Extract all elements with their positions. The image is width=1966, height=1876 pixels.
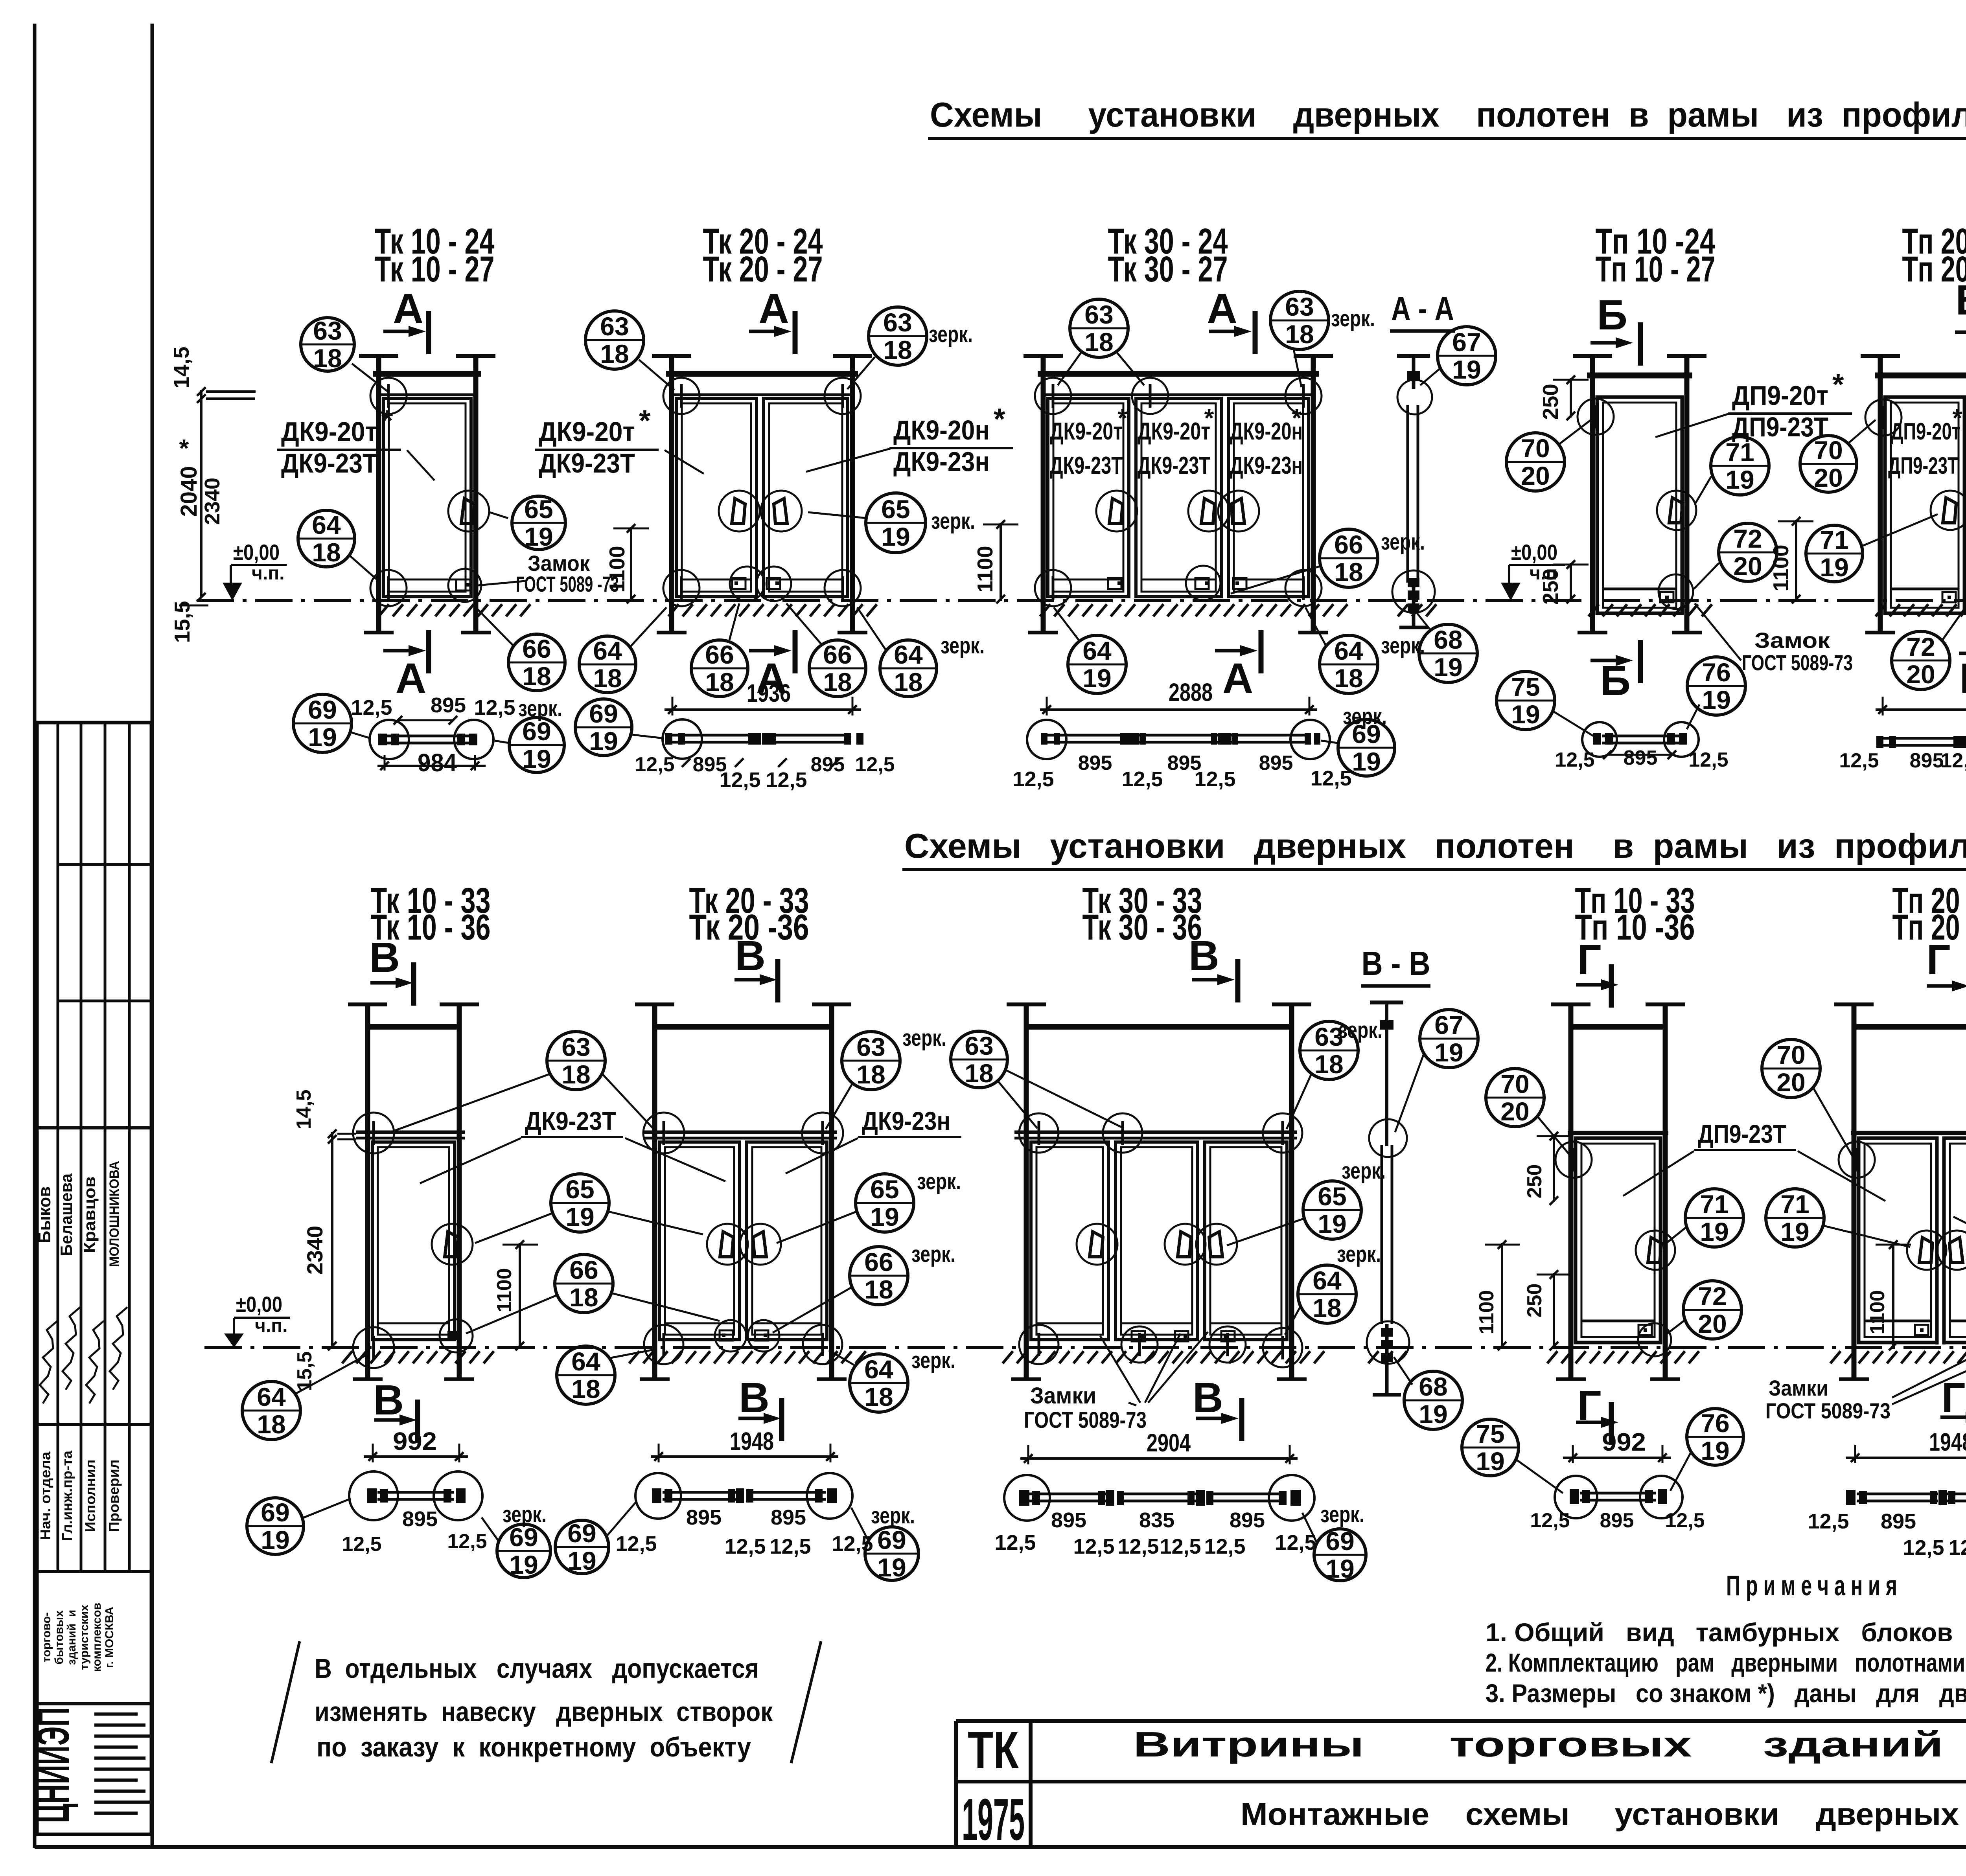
svg-text:18: 18 [313, 344, 342, 373]
svg-text:64: 64 [1082, 636, 1112, 665]
svg-text:895: 895 [1051, 1508, 1086, 1532]
svg-text:69: 69 [522, 717, 551, 746]
svg-text:ГОСТ 5089-73: ГОСТ 5089-73 [1024, 1407, 1147, 1433]
svg-text:ДК9-23Т: ДК9-23Т [1050, 452, 1123, 479]
svg-text:12,5: 12,5 [1688, 749, 1728, 771]
svg-text:12,5: 12,5 [1194, 767, 1235, 791]
svg-text:*: * [1953, 404, 1962, 432]
svg-text:19: 19 [881, 522, 910, 551]
svg-text:69: 69 [308, 695, 337, 724]
svg-text:19: 19 [1318, 1209, 1346, 1238]
svg-text:2904: 2904 [1147, 1429, 1191, 1457]
svg-text:12,5: 12,5 [635, 753, 674, 776]
svg-text:12,5: 12,5 [615, 1532, 657, 1556]
svg-text:*: * [1292, 404, 1302, 432]
svg-text:ГОСТ 5089-73: ГОСТ 5089-73 [1765, 1398, 1891, 1423]
svg-text:Схемы установки дверных: Схемы установки дверных полотен в рамы и… [930, 95, 1966, 134]
svg-text:19: 19 [1352, 747, 1381, 776]
svg-text:комплексов: комплексов [90, 1603, 103, 1672]
svg-text:19: 19 [1701, 1436, 1729, 1465]
svg-text:19: 19 [1700, 1217, 1729, 1246]
svg-text:64: 64 [1313, 1266, 1342, 1295]
svg-text:3. Размеры со знаком *) да: 3. Размеры со знаком *) даны для дверных… [1486, 1679, 1966, 1708]
svg-text:зерк.: зерк. [1342, 1158, 1386, 1184]
svg-text:ТК: ТК [968, 1720, 1019, 1780]
svg-text:71: 71 [1780, 1190, 1809, 1219]
svg-text:Тк 20 - 27: Тк 20 - 27 [703, 249, 823, 289]
svg-text:*: * [1832, 368, 1844, 401]
svg-text:12,5: 12,5 [1121, 767, 1163, 791]
svg-text:18: 18 [864, 1275, 893, 1304]
svg-text:895: 895 [1600, 1509, 1634, 1532]
svg-text:12,5: 12,5 [1204, 1535, 1245, 1558]
svg-text:64: 64 [864, 1355, 893, 1384]
svg-text:895: 895 [402, 1507, 438, 1531]
svg-text:12,5: 12,5 [1665, 1509, 1705, 1532]
svg-text:64: 64 [312, 510, 341, 539]
svg-text:63: 63 [883, 308, 912, 337]
svg-text:зерк.: зерк. [911, 1348, 955, 1373]
svg-text:1948: 1948 [730, 1427, 774, 1455]
svg-text:зданий и: зданий и [65, 1610, 78, 1665]
svg-text:В - В: В - В [1362, 945, 1430, 982]
svg-text:*: * [639, 404, 651, 438]
svg-text:69: 69 [1352, 719, 1381, 749]
svg-text:18: 18 [1084, 327, 1113, 357]
svg-text:±0,00: ±0,00 [236, 1292, 282, 1317]
svg-text:Схемы установки дверных: Схемы установки дверных полотен в рамы и… [904, 826, 1966, 865]
svg-text:19: 19 [565, 1202, 594, 1231]
svg-text:ЦНИИЭП: ЦНИИЭП [27, 1707, 79, 1823]
svg-text:ДК9-20т: ДК9-20т [281, 416, 377, 447]
svg-text:1100: 1100 [1866, 1290, 1889, 1335]
svg-text:70: 70 [1521, 434, 1550, 463]
svg-text:зерк.: зерк. [911, 1241, 955, 1267]
svg-text:895: 895 [1910, 749, 1944, 772]
svg-text:В: В [369, 933, 400, 981]
svg-text:2040: 2040 [176, 466, 202, 517]
svg-text:63: 63 [1285, 292, 1314, 321]
svg-text:895: 895 [1881, 1510, 1916, 1533]
svg-text:19: 19 [877, 1553, 906, 1582]
svg-text:П р и м е ч а н и я: П р и м е ч а н и я [1726, 1570, 1897, 1602]
svg-text:12,5: 12,5 [719, 768, 760, 792]
svg-text:Исполнил: Исполнил [82, 1460, 98, 1532]
svg-text:984: 984 [418, 749, 457, 777]
svg-text:ДК9-20т: ДК9-20т [539, 416, 635, 447]
svg-text:19: 19 [870, 1202, 899, 1231]
svg-text:895: 895 [771, 1506, 806, 1529]
svg-text:63: 63 [561, 1032, 590, 1061]
svg-text:69: 69 [589, 699, 618, 728]
svg-text:Б: Б [1597, 291, 1627, 338]
svg-text:А: А [393, 285, 423, 332]
svg-text:76: 76 [1702, 658, 1730, 687]
svg-text:зерк.: зерк. [917, 1169, 961, 1194]
svg-text:1100: 1100 [1769, 544, 1793, 591]
svg-text:18: 18 [965, 1059, 993, 1088]
svg-text:1975: 1975 [962, 1786, 1025, 1852]
svg-text:ДК9-23н: ДК9-23н [893, 446, 990, 477]
svg-text:19: 19 [1725, 465, 1754, 494]
svg-text:75: 75 [1511, 672, 1540, 701]
svg-text:12,5: 12,5 [994, 1531, 1036, 1554]
svg-text:Нач. отдела: Нач. отдела [37, 1451, 53, 1540]
svg-text:19: 19 [1702, 685, 1730, 714]
svg-text:12,5: 12,5 [1808, 1510, 1849, 1533]
svg-text:992: 992 [393, 1427, 437, 1455]
svg-text:250: 250 [1538, 384, 1563, 420]
svg-text:Замки: Замки [1030, 1383, 1096, 1409]
svg-text:А: А [1222, 654, 1253, 702]
svg-text:895: 895 [686, 1506, 722, 1529]
svg-text:12,5: 12,5 [1160, 1535, 1201, 1558]
svg-text:зерк.: зерк. [1337, 1241, 1381, 1267]
svg-text:1. Общий вид тамбурных б: 1. Общий вид тамбурных блоков см. листы … [1486, 1618, 1966, 1647]
svg-text:А: А [758, 285, 789, 332]
svg-text:66: 66 [569, 1255, 598, 1284]
svg-text:15,5: 15,5 [170, 601, 194, 643]
svg-text:Г: Г [1577, 936, 1601, 983]
svg-text:18: 18 [894, 668, 922, 697]
svg-text:12,5: 12,5 [1948, 1536, 1966, 1560]
svg-text:12,5: 12,5 [1839, 749, 1879, 772]
svg-text:70: 70 [1776, 1040, 1805, 1069]
svg-text:68: 68 [1419, 1372, 1447, 1401]
svg-text:бытовых: бытовых [53, 1610, 66, 1664]
svg-text:Замки: Замки [1769, 1376, 1828, 1400]
svg-text:*: * [994, 403, 1005, 436]
svg-text:12,5: 12,5 [1555, 749, 1594, 771]
svg-text:ДК9-23н: ДК9-23н [862, 1106, 950, 1135]
svg-text:19: 19 [1434, 1038, 1463, 1067]
svg-text:69: 69 [877, 1525, 906, 1554]
svg-text:12,5: 12,5 [1012, 767, 1054, 791]
svg-text:19: 19 [1434, 653, 1462, 682]
svg-text:71: 71 [1725, 438, 1754, 467]
svg-text:12,5: 12,5 [447, 1530, 487, 1553]
svg-text:А: А [396, 654, 426, 702]
svg-text:зерк.: зерк. [1331, 306, 1375, 331]
svg-text:зерк.: зерк. [931, 508, 975, 534]
svg-text:72: 72 [1906, 632, 1935, 661]
svg-text:18: 18 [823, 668, 852, 697]
svg-text:12,5: 12,5 [342, 1533, 381, 1556]
svg-text:1100: 1100 [1475, 1290, 1498, 1335]
svg-text:18: 18 [864, 1382, 893, 1411]
svg-text:12,5: 12,5 [474, 696, 515, 719]
svg-text:19: 19 [567, 1546, 596, 1575]
svg-text:1936: 1936 [747, 679, 791, 707]
svg-text:зерк.: зерк. [871, 1503, 915, 1528]
svg-text:В отдельных случаях допус: В отдельных случаях допускается [315, 1653, 759, 1684]
svg-text:торгово-: торгово- [40, 1612, 53, 1663]
svg-text:19: 19 [1780, 1217, 1809, 1246]
svg-text:12,5: 12,5 [1117, 1535, 1159, 1558]
svg-text:А - А: А - А [1391, 290, 1454, 327]
svg-text:Тк 10 - 27: Тк 10 - 27 [375, 249, 495, 289]
svg-text:68: 68 [1434, 625, 1462, 654]
svg-text:МОЛОШНИКОВА: МОЛОШНИКОВА [107, 1161, 122, 1267]
svg-text:64: 64 [571, 1347, 600, 1376]
svg-text:19: 19 [522, 744, 551, 773]
svg-text:18: 18 [312, 538, 341, 567]
svg-text:20: 20 [1698, 1309, 1727, 1338]
svg-text:Кравцов: Кравцов [80, 1177, 99, 1253]
svg-text:2. Комплектацию рам дверны: 2. Комплектацию рам дверными полотнами (… [1486, 1648, 1966, 1677]
svg-text:20: 20 [1500, 1097, 1529, 1126]
svg-text:70: 70 [1500, 1069, 1529, 1098]
svg-text:Проверил: Проверил [106, 1460, 122, 1532]
svg-text:Витрины торговых здан: Витрины торговых зданий [1133, 1725, 1943, 1764]
svg-text:19: 19 [1419, 1400, 1447, 1429]
svg-text:18: 18 [561, 1060, 590, 1089]
svg-text:ДК9-23Т: ДК9-23Т [539, 448, 635, 478]
svg-text:19: 19 [1452, 355, 1481, 384]
svg-text:12,5: 12,5 [1275, 1531, 1316, 1554]
svg-text:В: В [735, 932, 766, 979]
svg-text:19: 19 [308, 723, 337, 752]
svg-text:65: 65 [1318, 1182, 1346, 1211]
svg-text:895: 895 [1078, 752, 1112, 774]
svg-text:*: * [1118, 404, 1128, 432]
svg-text:Тп 10 - 27: Тп 10 - 27 [1596, 249, 1716, 289]
svg-text:Гл.инж.пр-та: Гл.инж.пр-та [59, 1450, 75, 1541]
svg-text:2888: 2888 [1169, 678, 1213, 706]
svg-text:12,5: 12,5 [1940, 749, 1966, 772]
svg-text:12,5: 12,5 [1073, 1535, 1114, 1558]
svg-text:18: 18 [856, 1060, 885, 1089]
svg-text:ГОСТ 5089 -73: ГОСТ 5089 -73 [516, 572, 619, 596]
svg-text:Белашева: Белашева [57, 1173, 75, 1256]
svg-text:В: В [1193, 1374, 1223, 1421]
svg-text:75: 75 [1476, 1419, 1504, 1448]
svg-text:Б: Б [1959, 654, 1966, 702]
svg-text:992: 992 [1602, 1428, 1646, 1456]
svg-text:835: 835 [1139, 1508, 1174, 1532]
svg-text:12,5: 12,5 [724, 1535, 766, 1558]
svg-text:Тк 30 - 27: Тк 30 - 27 [1108, 249, 1228, 289]
svg-text:Г: Г [1926, 936, 1950, 983]
svg-text:250: 250 [1538, 568, 1563, 605]
svg-text:20: 20 [1906, 660, 1935, 689]
svg-text:ДП9-20т: ДП9-20т [1732, 380, 1828, 411]
svg-text:Монтажные схемы установ: Монтажные схемы установки дверных полоте… [1241, 1797, 1966, 1832]
svg-text:72: 72 [1698, 1282, 1727, 1311]
svg-text:65: 65 [870, 1175, 899, 1204]
svg-text:63: 63 [965, 1031, 993, 1060]
svg-text:ДК9-20н: ДК9-20н [893, 415, 990, 445]
svg-text:14,5: 14,5 [293, 1089, 315, 1129]
svg-text:66: 66 [705, 640, 734, 669]
svg-text:70: 70 [1814, 436, 1843, 465]
svg-text:18: 18 [569, 1283, 598, 1312]
svg-text:А: А [1207, 285, 1237, 332]
svg-text:18: 18 [1314, 1050, 1343, 1079]
svg-text:20: 20 [1776, 1068, 1805, 1097]
svg-text:18: 18 [1334, 557, 1363, 587]
svg-text:*: * [381, 404, 393, 438]
svg-text:Замок: Замок [1754, 628, 1830, 653]
svg-text:12,5: 12,5 [1310, 767, 1351, 790]
svg-text:63: 63 [313, 316, 342, 345]
svg-text:зерк.: зерк. [902, 1025, 946, 1051]
svg-text:2340: 2340 [302, 1226, 327, 1275]
svg-text:20: 20 [1521, 461, 1550, 490]
svg-text:69: 69 [261, 1498, 289, 1527]
svg-text:Б: Б [1600, 657, 1631, 704]
svg-text:ДК9-20т: ДК9-20т [1138, 418, 1210, 445]
svg-text:19: 19 [1325, 1554, 1354, 1583]
svg-text:зерк.: зерк. [929, 322, 973, 347]
svg-text:15,5: 15,5 [293, 1351, 316, 1391]
svg-text:12,5: 12,5 [1903, 1536, 1944, 1560]
svg-text:71: 71 [1700, 1190, 1729, 1219]
svg-text:г. МОСКВА: г. МОСКВА [103, 1607, 116, 1668]
svg-text:2340: 2340 [201, 478, 224, 525]
svg-text:изменять навеску дверных с: изменять навеску дверных створок [315, 1696, 773, 1727]
svg-text:69: 69 [567, 1519, 596, 1548]
svg-text:64: 64 [593, 636, 622, 665]
svg-text:67: 67 [1452, 327, 1481, 357]
svg-text:18: 18 [1313, 1293, 1341, 1322]
svg-text:ДП9-23Т: ДП9-23Т [1698, 1119, 1786, 1148]
svg-text:65: 65 [881, 495, 910, 524]
svg-text:895: 895 [1259, 752, 1293, 774]
svg-text:63: 63 [856, 1032, 885, 1061]
svg-text:20: 20 [1733, 552, 1762, 581]
svg-text:64: 64 [1334, 636, 1363, 665]
svg-text:20: 20 [1814, 463, 1843, 492]
svg-text:250: 250 [1523, 1164, 1546, 1199]
svg-text:72: 72 [1733, 524, 1762, 553]
svg-text:туристских: туристских [78, 1605, 91, 1670]
svg-text:66: 66 [522, 634, 551, 663]
svg-text:ДК9-23Т: ДК9-23Т [281, 448, 377, 478]
svg-text:Тк 30 - 36: Тк 30 - 36 [1082, 907, 1202, 947]
svg-text:67: 67 [1434, 1010, 1463, 1039]
svg-text:ДК9-23Т: ДК9-23Т [1138, 452, 1210, 479]
svg-text:12,5: 12,5 [1530, 1509, 1570, 1532]
svg-text:19: 19 [261, 1525, 289, 1554]
svg-text:±0,00: ±0,00 [233, 540, 280, 565]
svg-text:895: 895 [1230, 1508, 1265, 1532]
svg-text:18: 18 [593, 664, 622, 693]
svg-text:18: 18 [522, 662, 551, 691]
svg-text:63: 63 [1084, 300, 1113, 329]
svg-text:зерк.: зерк. [1320, 1502, 1364, 1527]
svg-text:69: 69 [1325, 1527, 1354, 1556]
svg-text:ДК9-23Т: ДК9-23Т [525, 1106, 616, 1135]
svg-text:14,5: 14,5 [169, 346, 193, 388]
svg-text:65: 65 [524, 495, 553, 524]
svg-text:Б: Б [1955, 276, 1966, 324]
svg-text:895: 895 [811, 753, 845, 776]
svg-text:18: 18 [1285, 320, 1314, 349]
svg-text:±0,00: ±0,00 [1511, 540, 1557, 565]
svg-text:66: 66 [1334, 530, 1363, 559]
svg-text:63: 63 [600, 312, 629, 341]
svg-text:18: 18 [571, 1374, 600, 1403]
svg-text:66: 66 [864, 1247, 893, 1276]
svg-text:18: 18 [705, 668, 734, 697]
svg-text:12,5: 12,5 [855, 753, 895, 776]
svg-text:Быков: Быков [35, 1186, 54, 1243]
svg-text:19: 19 [1820, 553, 1848, 582]
svg-text:65: 65 [565, 1175, 594, 1204]
svg-text:*: * [179, 434, 189, 462]
svg-text:18: 18 [1334, 664, 1363, 693]
svg-text:71: 71 [1820, 525, 1848, 554]
svg-text:1100: 1100 [605, 546, 629, 592]
svg-text:19: 19 [509, 1550, 538, 1579]
svg-text:12,5: 12,5 [769, 1535, 811, 1558]
svg-text:19: 19 [589, 726, 618, 756]
svg-text:64: 64 [257, 1382, 286, 1411]
svg-text:1100: 1100 [973, 546, 997, 592]
svg-text:19: 19 [1511, 700, 1540, 729]
svg-text:1100: 1100 [493, 1268, 516, 1313]
svg-text:18: 18 [257, 1410, 285, 1439]
svg-text:250: 250 [1523, 1284, 1546, 1318]
svg-text:В: В [1189, 932, 1219, 979]
svg-text:зерк.: зерк. [1338, 1017, 1382, 1043]
svg-text:1948: 1948 [1929, 1428, 1966, 1456]
svg-text:76: 76 [1701, 1409, 1729, 1438]
svg-text:12,5: 12,5 [351, 696, 392, 719]
svg-text:895: 895 [431, 693, 466, 717]
svg-text:зерк.: зерк. [941, 633, 985, 658]
svg-text:895: 895 [1624, 747, 1658, 769]
svg-text:64: 64 [894, 640, 923, 669]
svg-text:*: * [1204, 404, 1214, 432]
svg-text:по заказу к конкретному об: по заказу к конкретному объекту [317, 1732, 751, 1762]
svg-text:19: 19 [1476, 1447, 1504, 1476]
svg-text:19: 19 [524, 522, 553, 551]
svg-text:ГОСТ 5089-73: ГОСТ 5089-73 [1742, 650, 1853, 675]
svg-text:18: 18 [600, 339, 629, 368]
svg-text:ДК9-20т: ДК9-20т [1050, 418, 1123, 445]
svg-text:ДП9-23Т: ДП9-23Т [1888, 452, 1958, 479]
svg-text:69: 69 [509, 1523, 538, 1552]
svg-text:18: 18 [883, 335, 912, 364]
svg-text:19: 19 [1082, 664, 1111, 693]
svg-text:66: 66 [823, 640, 852, 669]
svg-text:12,5: 12,5 [766, 768, 807, 792]
svg-text:ДК9-23н: ДК9-23н [1230, 452, 1303, 479]
svg-text:В: В [373, 1376, 404, 1424]
svg-text:ДП9-20т: ДП9-20т [1891, 418, 1960, 445]
